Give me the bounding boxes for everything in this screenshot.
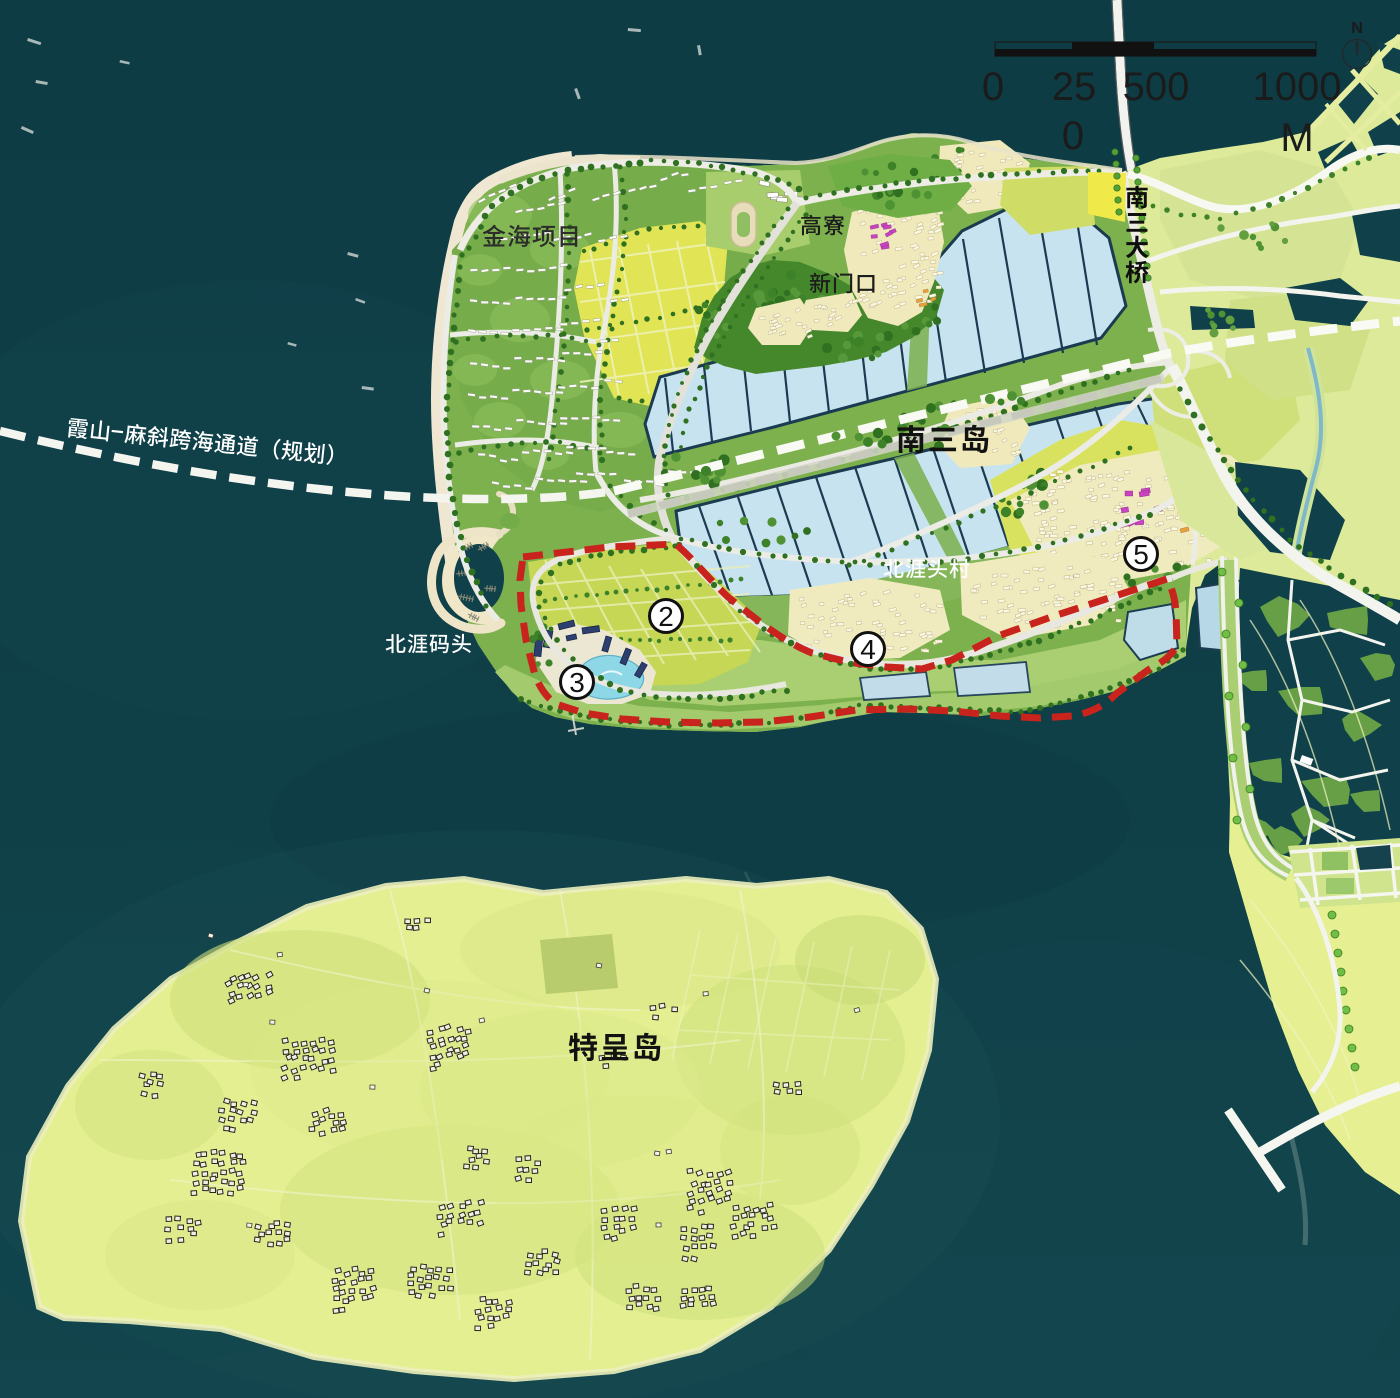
svg-text:500: 500 bbox=[1123, 65, 1190, 109]
svg-text:0: 0 bbox=[1062, 114, 1084, 158]
svg-text:2: 2 bbox=[658, 601, 674, 632]
svg-text:0: 0 bbox=[982, 65, 1004, 109]
svg-text:M: M bbox=[1280, 116, 1313, 160]
svg-text:5: 5 bbox=[1133, 539, 1149, 570]
svg-text:25: 25 bbox=[1052, 65, 1097, 109]
svg-text:4: 4 bbox=[860, 634, 876, 665]
svg-text:1000: 1000 bbox=[1253, 65, 1342, 109]
svg-text:3: 3 bbox=[569, 667, 585, 698]
svg-text:N: N bbox=[1351, 20, 1363, 37]
